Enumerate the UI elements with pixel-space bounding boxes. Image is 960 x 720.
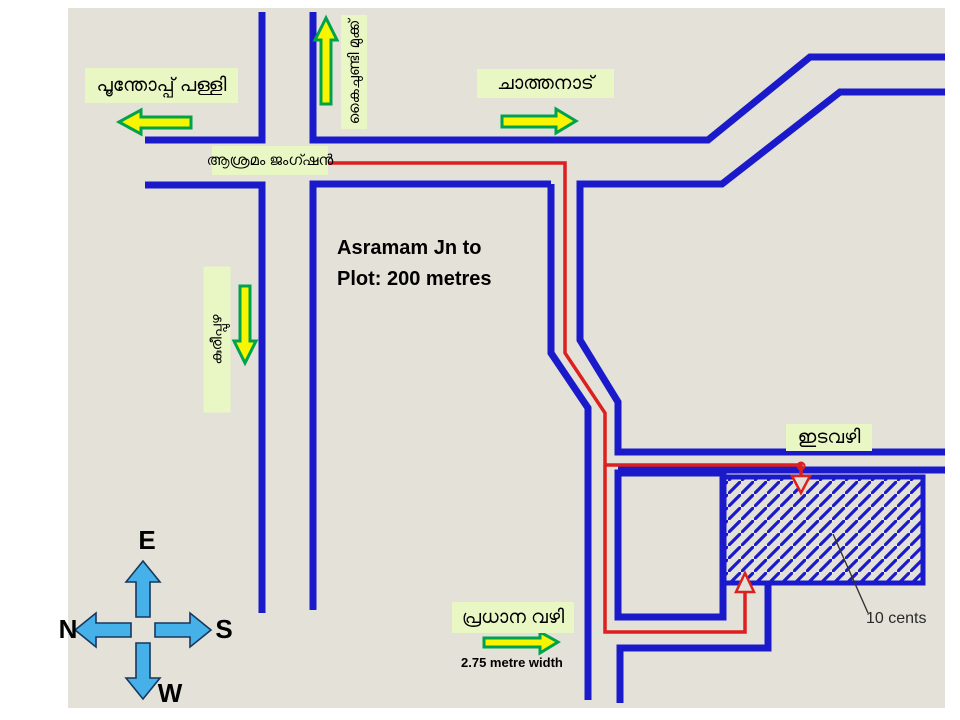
label-east-destination: ചാത്തനാട് [477, 69, 614, 98]
compass-label-bottom: W [155, 678, 185, 708]
label-junction: ആശ്രമം ജംഗ്ഷൻ [212, 146, 328, 175]
distance-note: Asramam Jn to Plot: 200 metres [337, 233, 492, 295]
target-plot-hatched [723, 477, 923, 583]
plot-area-note: 10 cents [866, 610, 926, 628]
road-north-right-and-east-top-edge [313, 12, 945, 140]
label-north-destination: കൈചുണ്ടി മുക്ക് [341, 15, 367, 129]
road-east-bottom-edge-and-plot-lane-right [580, 92, 945, 452]
label-west-destination: പൂന്തോപ്പ് പള്ളി [85, 68, 238, 103]
arrow-main-way-icon [484, 632, 558, 653]
label-south-destination: കുരീപ്പുഴ [204, 267, 231, 413]
label-main-way: പ്രധാന വഴി [452, 602, 574, 633]
arrow-east-icon [502, 109, 576, 133]
arrow-down-icon [234, 286, 256, 363]
compass-label-left: N [53, 614, 83, 644]
compound-plot-outline [618, 473, 723, 617]
compass-label-top: E [132, 525, 162, 555]
compass-arrow-right-icon [155, 613, 211, 647]
distance-note-line1: Asramam Jn to [337, 233, 492, 264]
distance-note-line2: Plot: 200 metres [337, 264, 492, 295]
compass-label-right: S [209, 614, 239, 644]
label-byway: ഇടവഴി [786, 424, 872, 451]
arrow-west-icon [119, 110, 191, 134]
arrow-up-icon [315, 18, 337, 104]
main-way-width-note: 2.75 metre width [461, 655, 563, 670]
compass-arrow-left-icon [75, 613, 131, 647]
compass-arrow-up-icon [126, 561, 160, 617]
